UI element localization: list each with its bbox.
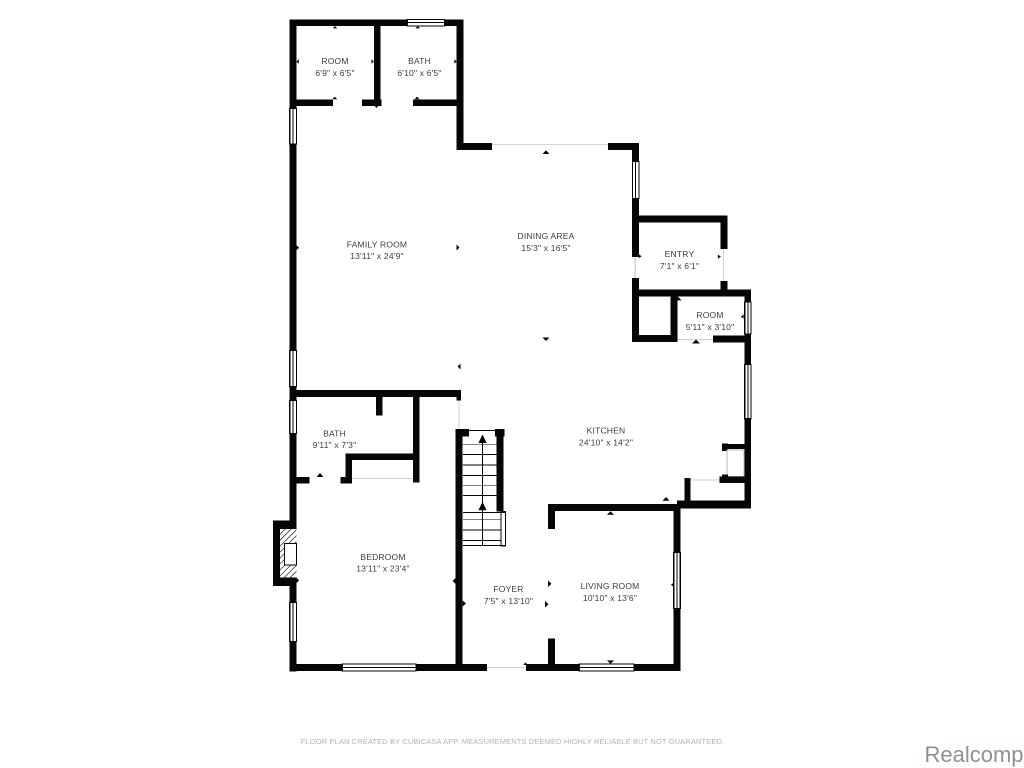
svg-text:BATH: BATH xyxy=(323,429,346,439)
svg-text:10'10" x 13'6": 10'10" x 13'6" xyxy=(583,593,637,603)
svg-text:6'9" x 6'5": 6'9" x 6'5" xyxy=(315,68,354,78)
svg-text:DINING AREA: DINING AREA xyxy=(518,231,575,241)
svg-text:LIVING ROOM: LIVING ROOM xyxy=(581,581,640,591)
svg-text:5'11" x 3'10": 5'11" x 3'10" xyxy=(686,322,735,332)
svg-text:ROOM: ROOM xyxy=(696,310,723,320)
svg-text:ENTRY: ENTRY xyxy=(665,249,695,259)
svg-text:BATH: BATH xyxy=(408,56,431,66)
svg-text:13'11" x 24'9": 13'11" x 24'9" xyxy=(350,251,404,261)
svg-text:7'5" x 13'10": 7'5" x 13'10" xyxy=(484,596,533,606)
svg-text:BEDROOM: BEDROOM xyxy=(360,552,405,562)
svg-text:9'11" x 7'3": 9'11" x 7'3" xyxy=(313,440,357,450)
svg-text:ROOM: ROOM xyxy=(321,56,348,66)
svg-text:FAMILY ROOM: FAMILY ROOM xyxy=(347,240,407,250)
svg-text:13'11" x 23'4": 13'11" x 23'4" xyxy=(356,563,410,573)
svg-text:FLOOR PLAN CREATED BY CUBICASA: FLOOR PLAN CREATED BY CUBICASA APP. MEAS… xyxy=(301,737,724,746)
svg-text:6'10" x 6'5": 6'10" x 6'5" xyxy=(397,68,441,78)
svg-text:15'3" x 16'5": 15'3" x 16'5" xyxy=(521,243,570,253)
svg-text:7'1" x 6'1": 7'1" x 6'1" xyxy=(660,261,699,271)
svg-text:KITCHEN: KITCHEN xyxy=(587,426,626,436)
svg-text:FOYER: FOYER xyxy=(493,584,523,594)
svg-text:Realcomp: Realcomp xyxy=(925,742,1024,767)
svg-text:24'10" x 14'2": 24'10" x 14'2" xyxy=(579,438,633,448)
